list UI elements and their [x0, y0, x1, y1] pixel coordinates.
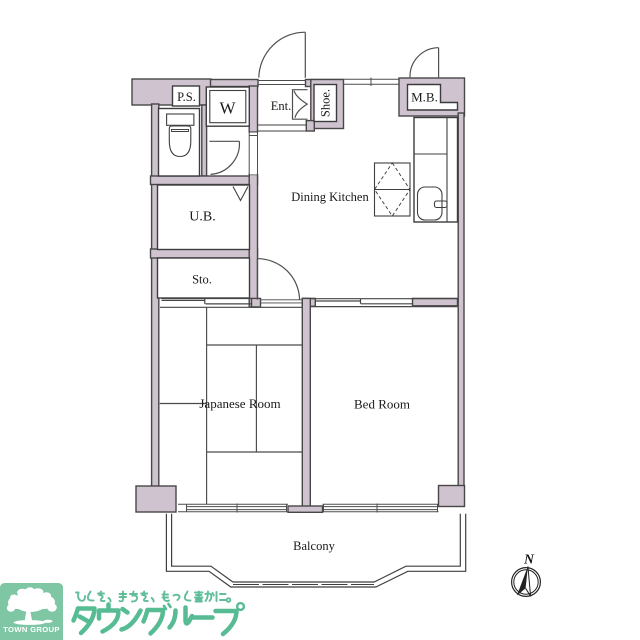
svg-text:M.B.: M.B.	[411, 90, 438, 105]
svg-text:N: N	[523, 552, 535, 567]
svg-text:Balcony: Balcony	[293, 539, 335, 553]
svg-text:TOWN GROUP: TOWN GROUP	[3, 625, 60, 634]
svg-text:Shoe.: Shoe.	[319, 89, 333, 117]
svg-text:W: W	[219, 99, 236, 118]
svg-text:Dining Kitchen: Dining Kitchen	[291, 190, 369, 204]
svg-text:P.S.: P.S.	[177, 90, 196, 104]
svg-text:Sto.: Sto.	[192, 273, 212, 287]
svg-text:Bed Room: Bed Room	[354, 397, 410, 412]
svg-text:Japanese Room: Japanese Room	[199, 396, 280, 411]
svg-text:Ent.: Ent.	[271, 99, 291, 113]
svg-text:U.B.: U.B.	[189, 210, 215, 225]
